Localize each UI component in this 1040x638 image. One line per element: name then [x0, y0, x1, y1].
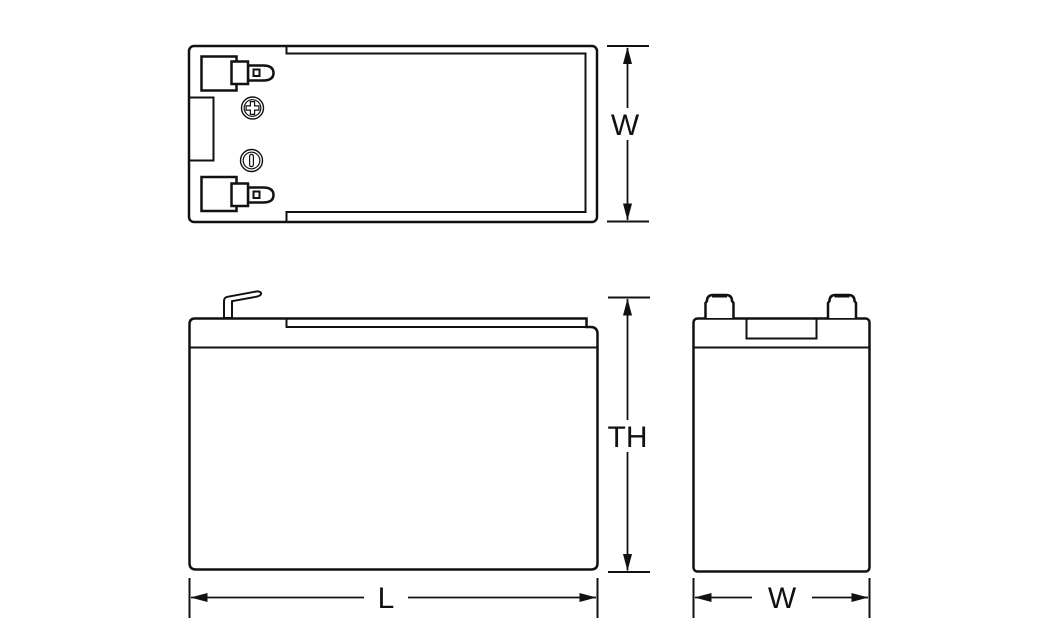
- side-view: TH L: [190, 291, 651, 618]
- terminal-cap: [828, 295, 856, 318]
- side-view-terminal-tab: [224, 291, 261, 318]
- arrow-down-icon: [623, 554, 632, 571]
- dimension-top-width: W: [607, 46, 649, 222]
- side-view-outline: [190, 319, 598, 570]
- arrow-down-icon: [623, 204, 632, 221]
- arrow-right-icon: [852, 593, 869, 602]
- terminal-cap: [706, 295, 734, 318]
- end-view-terminal-left: [706, 295, 734, 318]
- dimension-label-l: L: [378, 582, 395, 615]
- positive-blade-hole: [254, 70, 260, 77]
- arrow-up-icon: [623, 299, 632, 316]
- arrow-left-icon: [191, 593, 208, 602]
- dimension-label-w-top: W: [611, 109, 640, 142]
- arrow-up-icon: [623, 47, 632, 64]
- end-view-outline: [694, 319, 870, 572]
- end-view-terminal-right: [828, 295, 856, 318]
- top-view: W: [189, 46, 649, 222]
- negative-blade-shank: [232, 184, 249, 207]
- battery-dimension-drawing: W TH L: [0, 0, 1040, 638]
- negative-faston-blade: [248, 188, 274, 203]
- dimension-total-height: TH: [608, 298, 651, 573]
- dimension-label-th: TH: [608, 421, 648, 454]
- dimension-end-width: W: [694, 578, 870, 618]
- positive-faston-blade: [248, 66, 274, 81]
- arrow-right-icon: [580, 593, 597, 602]
- dimension-length: L: [190, 578, 598, 618]
- end-view: W: [694, 295, 870, 618]
- negative-blade-hole: [254, 192, 260, 199]
- positive-blade-shank: [232, 62, 249, 85]
- drawing-svg: W TH L: [0, 0, 1040, 638]
- dimension-label-w-end: W: [768, 582, 797, 615]
- arrow-left-icon: [695, 593, 712, 602]
